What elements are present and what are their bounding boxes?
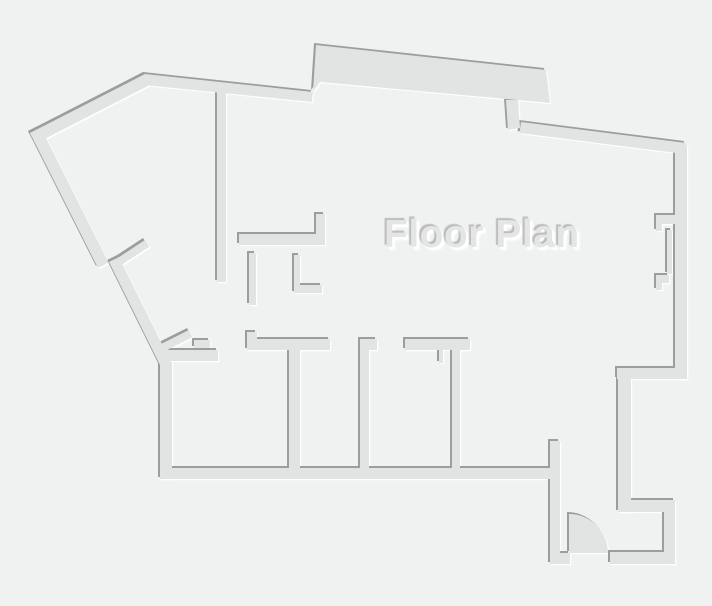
wall-room1-bar-step: [247, 332, 257, 340]
wall-outer-left-lower: [160, 362, 172, 479]
wall-closet-stub-b: [294, 255, 300, 293]
wall-outer-right: [675, 145, 687, 379]
wall-room-divider-2: [360, 350, 369, 470]
wall-outer-left-diagonal-upper: [30, 128, 109, 268]
wall-room2-bar: [360, 339, 377, 350]
wall-door-jamb-left-upper: [110, 240, 149, 270]
wall-room1-bar: [247, 339, 330, 350]
wall-entry-door-swing: [569, 514, 608, 553]
wall-closet-stub-a: [249, 253, 256, 305]
floor-plan-page: Floor Plan: [0, 0, 712, 606]
wall-closet-stub-b-foot: [300, 285, 322, 293]
wall-outer-top-left-diagonal: [30, 74, 151, 144]
wall-window-pane: [667, 230, 672, 274]
wall-vestibule-wall: [550, 441, 560, 564]
floor-plan-svg: [0, 0, 712, 606]
wall-closet-top: [239, 234, 318, 245]
wall-room-divider-1: [289, 350, 300, 470]
wall-outer-top-protrusion: [313, 45, 550, 103]
floor-plan-title: Floor Plan: [384, 213, 580, 257]
wall-room1-door-jamb: [194, 340, 210, 348]
wall-room-divider-3: [452, 350, 460, 470]
wall-outer-top-right-diagonal: [520, 122, 687, 154]
wall-shadow-layer: [28, 43, 685, 562]
wall-hall-divider: [217, 86, 226, 282]
wall-outer-bottom: [160, 468, 554, 479]
wall-fill-layer: [30, 45, 687, 564]
wall-room3-door-leaf: [439, 350, 443, 363]
wall-room3-bar: [405, 339, 470, 350]
wall-closet-stub-right: [316, 214, 325, 245]
wall-entry-bottom: [610, 552, 675, 564]
wall-room1-top: [162, 350, 218, 361]
wall-outer-right-lower: [618, 368, 631, 512]
wall-protrusion-descender: [506, 100, 520, 130]
